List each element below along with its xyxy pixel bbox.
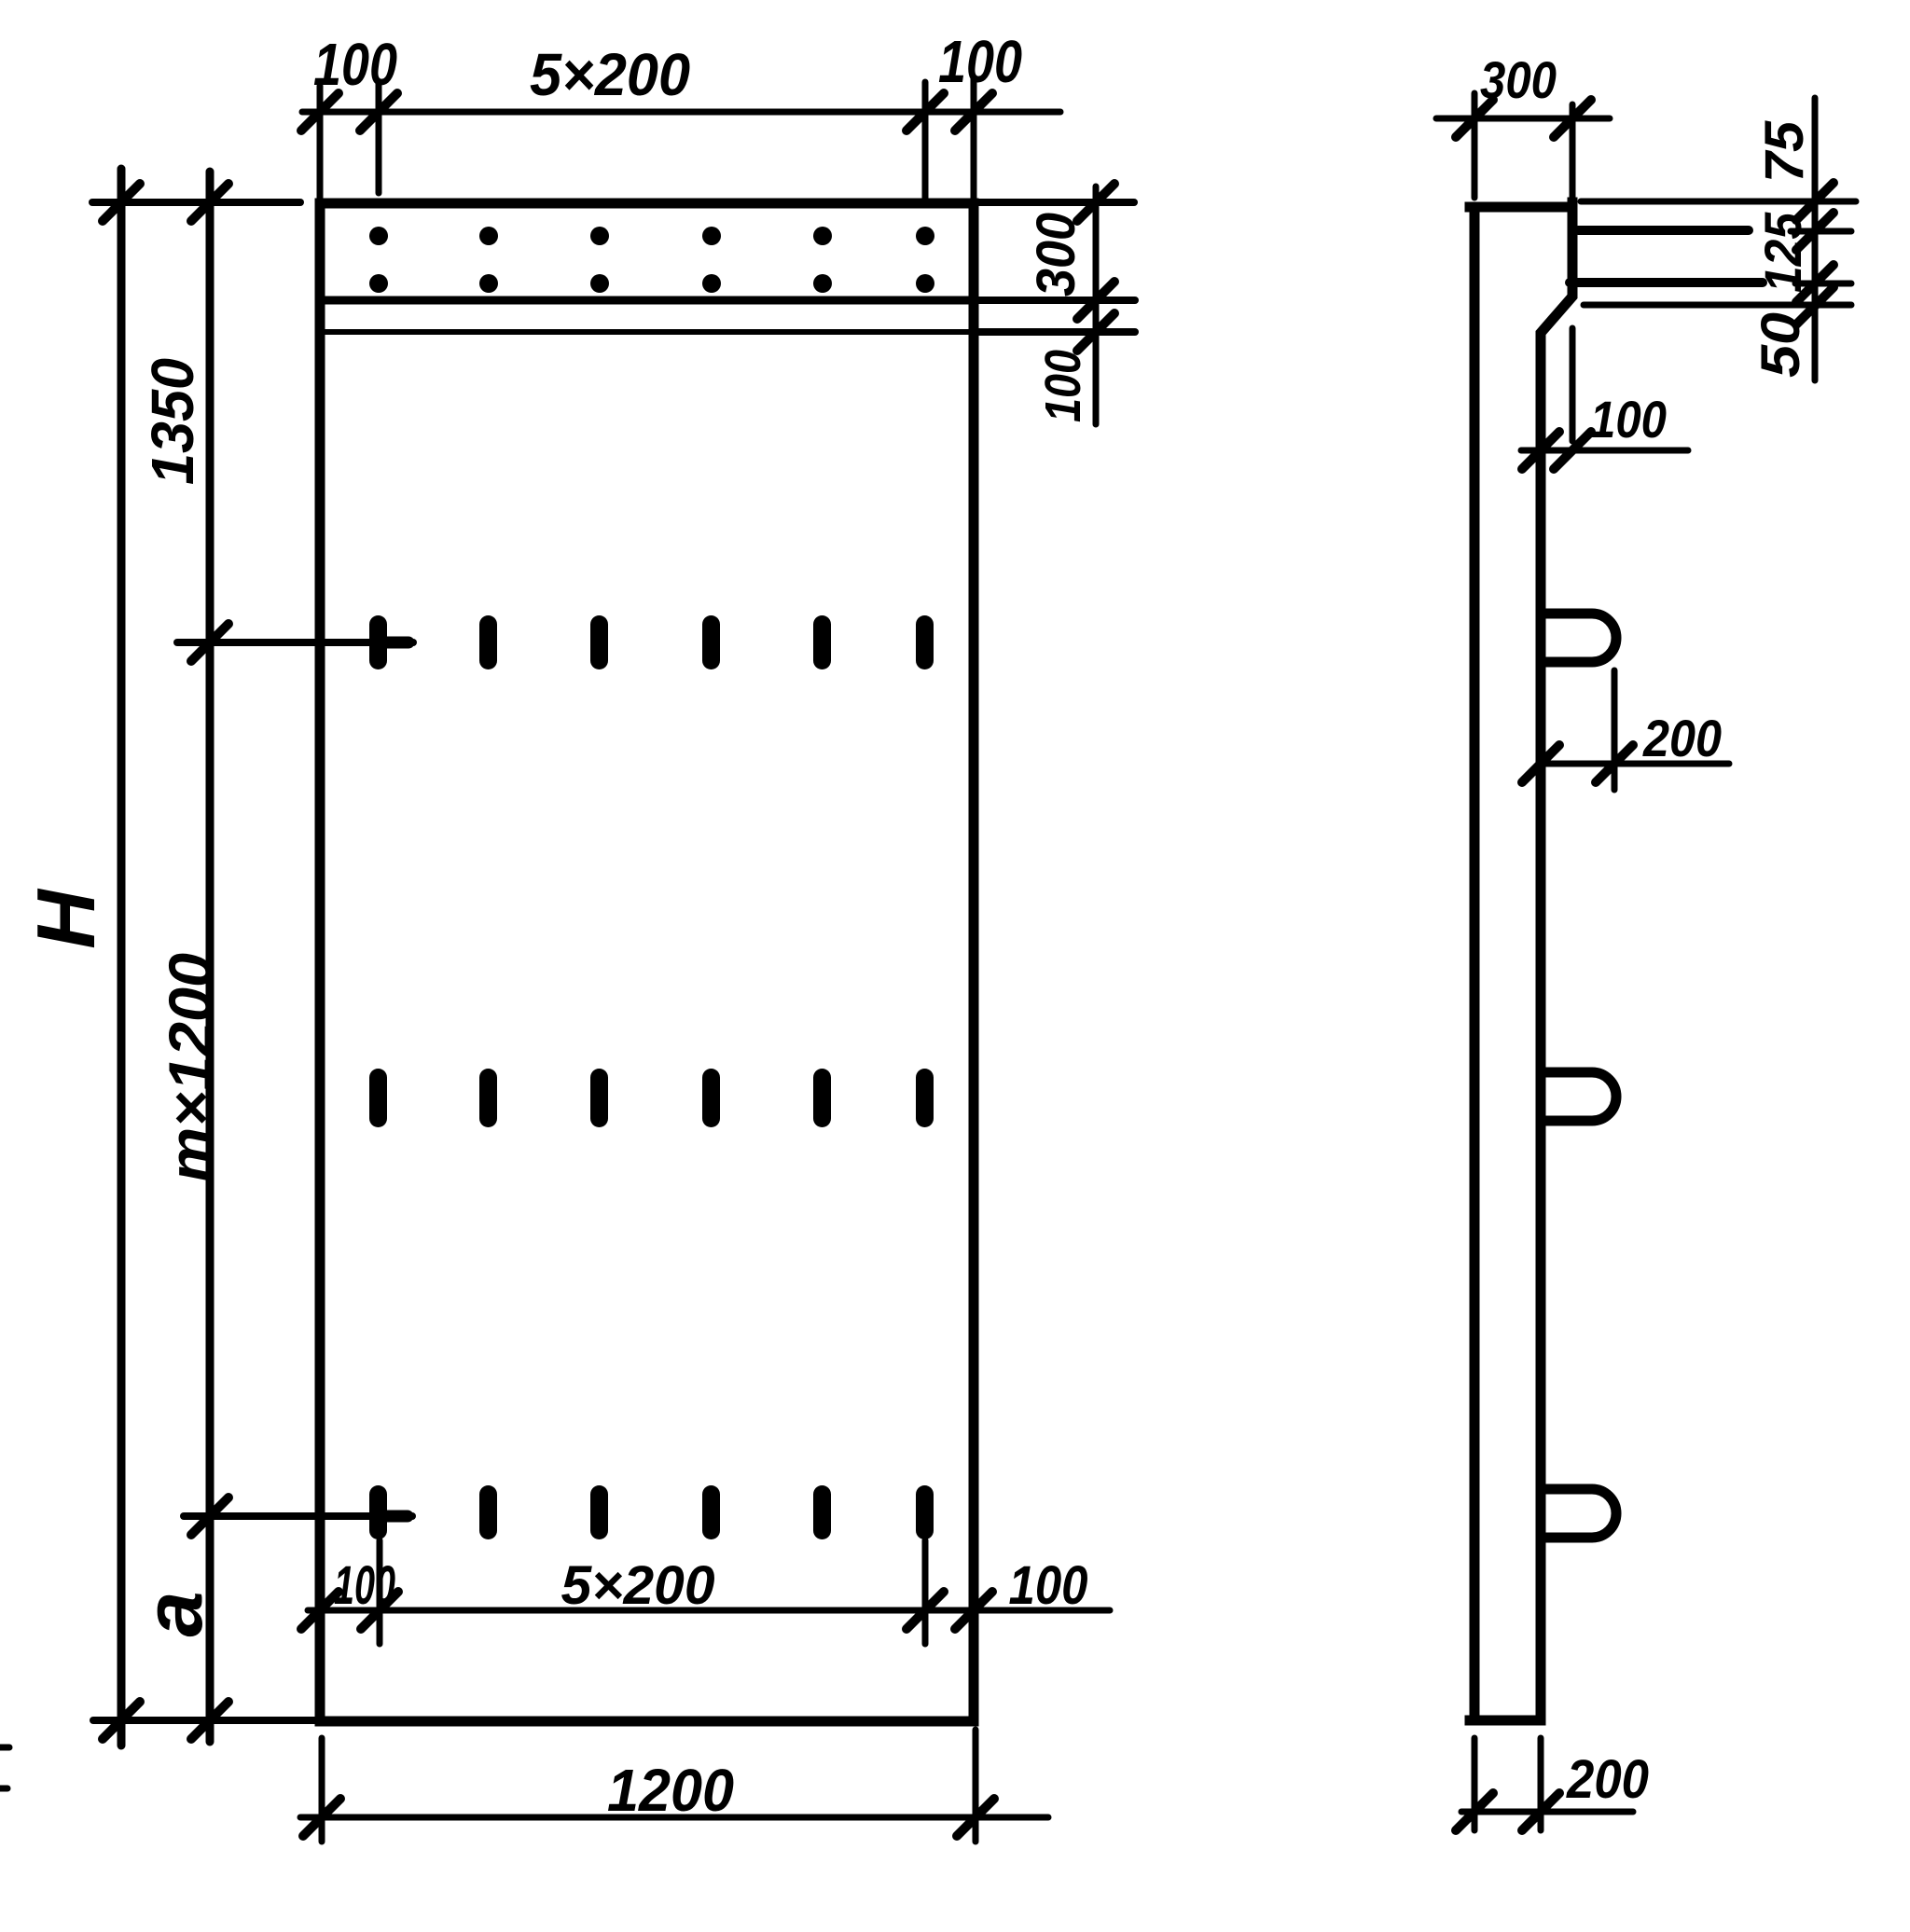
svg-text:100: 100 (1590, 390, 1667, 448)
svg-text:200: 200 (1566, 1749, 1649, 1810)
svg-text:1200: 1200 (607, 1757, 734, 1824)
svg-text:200: 200 (1642, 709, 1722, 767)
svg-text:5×200: 5×200 (561, 1555, 715, 1616)
svg-text:1350: 1350 (139, 358, 206, 485)
svg-text:75: 75 (1754, 120, 1815, 183)
svg-text:100: 100 (334, 1555, 395, 1616)
svg-text:H: H (20, 888, 112, 949)
svg-text:5×200: 5×200 (530, 41, 690, 108)
svg-text:100: 100 (313, 31, 397, 98)
svg-text:125: 125 (1753, 212, 1812, 293)
svg-text:300: 300 (1026, 213, 1086, 297)
svg-text:300: 300 (1480, 50, 1557, 109)
svg-text:100: 100 (1035, 350, 1091, 422)
svg-text:100: 100 (938, 28, 1022, 95)
svg-text:50: 50 (1751, 312, 1811, 378)
svg-text:m×1200: m×1200 (156, 953, 225, 1182)
svg-text:a: a (127, 1592, 219, 1637)
svg-text:100: 100 (1009, 1555, 1088, 1616)
